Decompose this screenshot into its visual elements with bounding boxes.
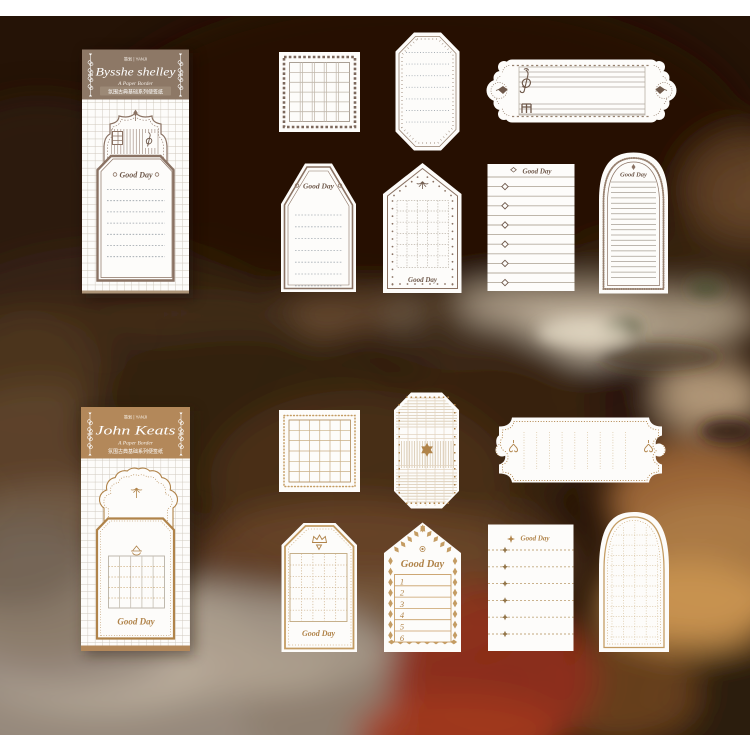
svg-text:Good Day: Good Day <box>303 182 335 191</box>
svg-text:策划 | YANJI: 策划 | YANJI <box>124 414 147 421</box>
svg-text:5: 5 <box>400 622 404 632</box>
svg-text:1: 1 <box>400 576 404 586</box>
svg-text:A Paper Border: A Paper Border <box>117 81 154 87</box>
svg-text:Bysshe shelley: Bysshe shelley <box>96 65 177 79</box>
svg-text:Good Day: Good Day <box>119 171 153 180</box>
svg-text:Good Day: Good Day <box>523 168 553 176</box>
svg-text:3: 3 <box>399 599 404 609</box>
svg-text:Good Day: Good Day <box>620 172 647 179</box>
svg-text:Good Day: Good Day <box>408 276 438 284</box>
svg-text:A Paper Border: A Paper Border <box>117 441 154 447</box>
svg-text:Good Day: Good Day <box>302 629 336 638</box>
svg-text:氛围古典基础系列便签纸: 氛围古典基础系列便签纸 <box>108 89 163 96</box>
svg-text:策划 | YANJI: 策划 | YANJI <box>124 56 147 63</box>
svg-text:Good Day: Good Day <box>117 617 155 627</box>
svg-text:John Keats: John Keats <box>96 423 176 438</box>
svg-text:Good Day: Good Day <box>401 559 445 570</box>
svg-text:Good Day: Good Day <box>521 535 551 543</box>
svg-text:氛围古典基础系列便签纸: 氛围古典基础系列便签纸 <box>108 448 163 455</box>
